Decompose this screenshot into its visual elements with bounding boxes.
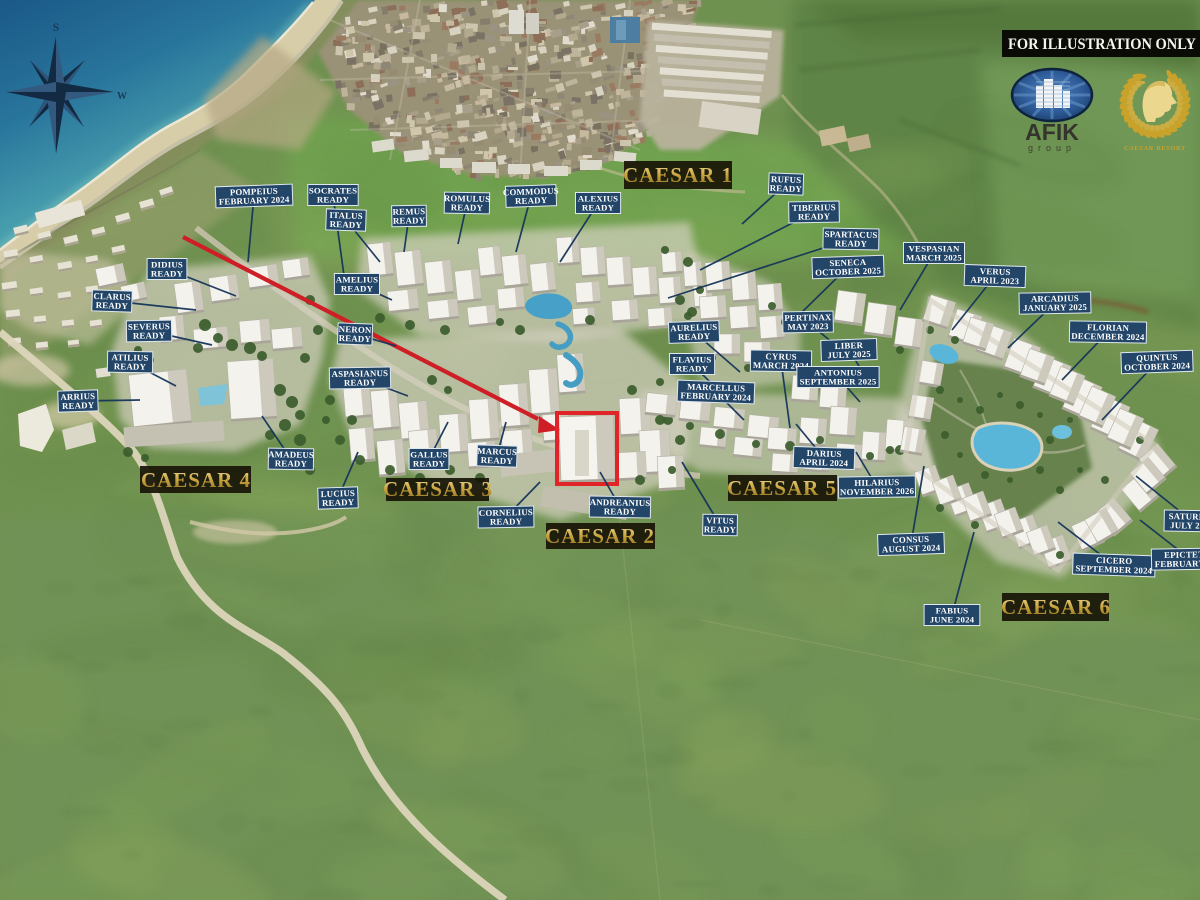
- svg-text:MAY 2023: MAY 2023: [787, 321, 829, 332]
- svg-text:APRIL 2024: APRIL 2024: [799, 457, 848, 469]
- svg-text:JULY 2024: JULY 2024: [1170, 520, 1200, 531]
- svg-text:CAESAR 2: CAESAR 2: [545, 524, 655, 548]
- svg-text:READY: READY: [835, 238, 868, 249]
- svg-text:READY: READY: [490, 516, 523, 527]
- svg-text:DECEMBER 2024: DECEMBER 2024: [1071, 331, 1145, 342]
- svg-text:READY: READY: [451, 202, 484, 213]
- svg-text:CAESAR 3: CAESAR 3: [383, 477, 493, 501]
- svg-text:CAESAR 1: CAESAR 1: [623, 163, 733, 187]
- svg-text:NOVEMBER 2026: NOVEMBER 2026: [840, 486, 915, 497]
- svg-text:FOR ILLUSTRATION ONLY: FOR ILLUSTRATION ONLY: [1008, 36, 1196, 53]
- svg-text:MARCH 2025: MARCH 2025: [906, 253, 962, 263]
- svg-text:READY: READY: [413, 459, 446, 469]
- svg-text:AFIK: AFIK: [1025, 119, 1079, 145]
- svg-text:SEPTEMBER 2025: SEPTEMBER 2025: [800, 377, 877, 387]
- svg-text:CAESAR RESORT: CAESAR RESORT: [1124, 145, 1186, 152]
- svg-text:READY: READY: [317, 195, 350, 205]
- svg-text:READY: READY: [330, 219, 363, 230]
- svg-text:READY: READY: [515, 195, 548, 206]
- svg-text:READY: READY: [582, 203, 615, 213]
- svg-text:READY: READY: [151, 269, 184, 279]
- svg-text:CAESAR 6: CAESAR 6: [1001, 595, 1111, 619]
- svg-text:AUGUST 2024: AUGUST 2024: [882, 542, 941, 554]
- svg-text:W: W: [117, 91, 127, 102]
- svg-text:READY: READY: [481, 455, 514, 466]
- svg-text:APRIL 2023: APRIL 2023: [970, 275, 1019, 287]
- svg-text:JULY 2025: JULY 2025: [827, 349, 871, 361]
- svg-text:READY: READY: [275, 458, 308, 469]
- svg-text:group: group: [1028, 143, 1076, 153]
- svg-text:READY: READY: [341, 284, 374, 294]
- svg-text:CAESAR 5: CAESAR 5: [727, 476, 837, 500]
- svg-text:JUNE 2024: JUNE 2024: [930, 615, 975, 625]
- svg-text:READY: READY: [704, 524, 737, 535]
- svg-text:READY: READY: [322, 497, 355, 508]
- svg-text:READY: READY: [62, 400, 95, 411]
- svg-text:READY: READY: [96, 300, 129, 311]
- svg-text:FEBRUARY 2025: FEBRUARY 2025: [1155, 558, 1200, 569]
- svg-text:S: S: [53, 20, 60, 34]
- svg-text:READY: READY: [393, 215, 426, 226]
- svg-text:READY: READY: [114, 361, 147, 372]
- svg-text:READY: READY: [339, 333, 372, 344]
- svg-text:READY: READY: [604, 506, 637, 517]
- svg-text:CAESAR 4: CAESAR 4: [141, 468, 251, 492]
- svg-text:READY: READY: [344, 377, 377, 388]
- svg-text:READY: READY: [770, 183, 803, 194]
- svg-text:READY: READY: [678, 331, 711, 342]
- svg-text:READY: READY: [798, 211, 831, 222]
- svg-text:READY: READY: [676, 364, 709, 374]
- svg-text:READY: READY: [133, 330, 166, 341]
- svg-text:JANUARY 2025: JANUARY 2025: [1023, 302, 1088, 313]
